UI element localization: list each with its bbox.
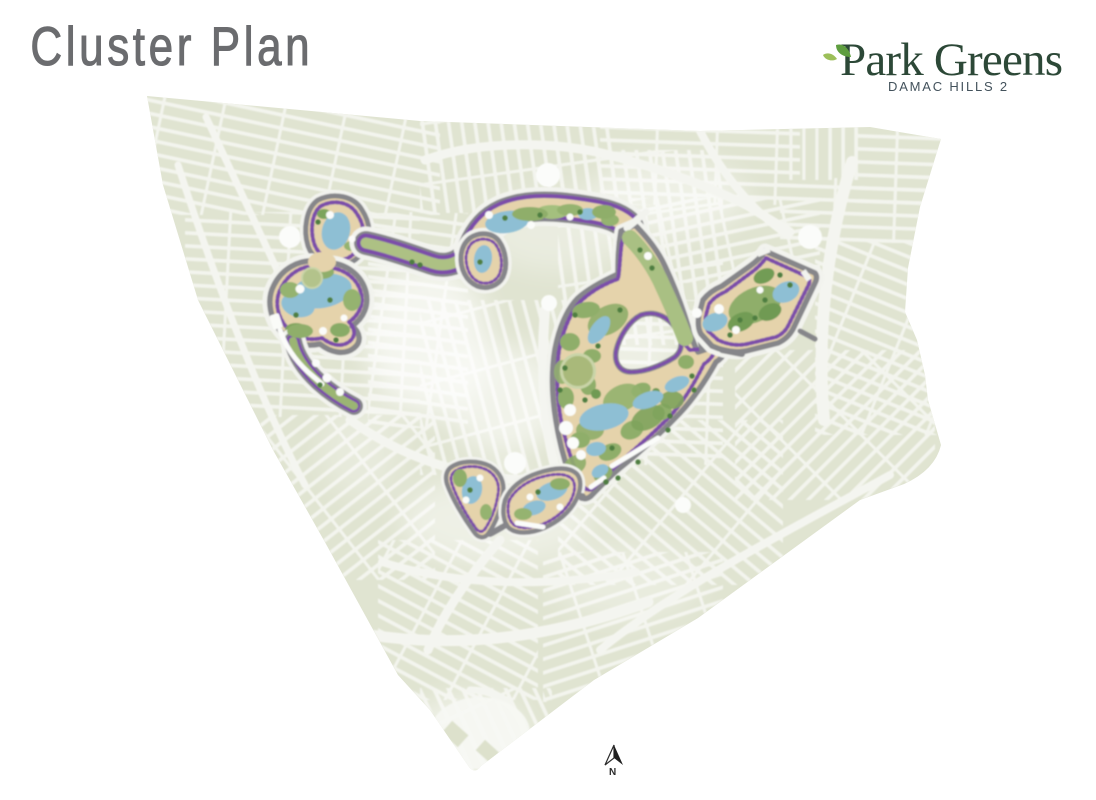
svg-text:DAMAC HILLS 2: DAMAC HILLS 2	[888, 79, 1009, 94]
svg-text:N: N	[609, 767, 616, 778]
svg-text:Cluster Plan: Cluster Plan	[30, 15, 313, 77]
